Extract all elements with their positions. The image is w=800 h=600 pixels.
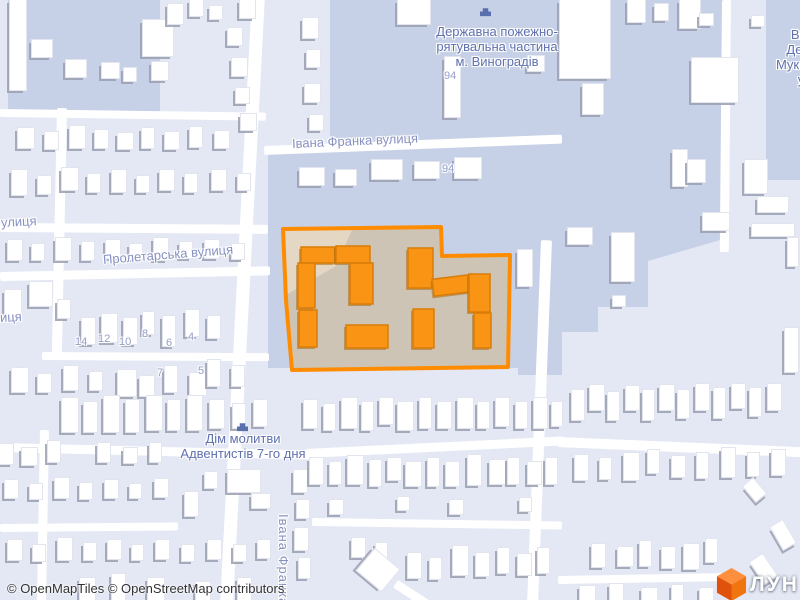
house-number: 5: [198, 365, 204, 377]
house-number: 94: [442, 163, 454, 175]
complex-building[interactable]: [350, 263, 373, 304]
lun-cube-icon: [716, 568, 747, 600]
complex-building[interactable]: [299, 310, 317, 347]
house-number: 10: [119, 336, 131, 348]
house-number: 7: [157, 367, 163, 379]
complex-building[interactable]: [408, 248, 433, 288]
complex-building[interactable]: [469, 274, 490, 312]
house-number: 94: [444, 70, 456, 82]
complex-building[interactable]: [432, 275, 471, 296]
complex-building[interactable]: [301, 247, 335, 263]
adventist-church-label: Дім молитвиАдвентистів 7-го дня: [180, 431, 305, 461]
street-label: улиця: [1, 213, 37, 230]
church-icon: [236, 419, 249, 430]
house-number: 4: [188, 331, 194, 343]
attribution-text[interactable]: © OpenMapTiles © OpenStreetMap contribut…: [7, 581, 284, 596]
complex-building[interactable]: [474, 313, 491, 348]
university-label: ВиноДержаМукачівсьуні: [776, 27, 800, 87]
street-label: иця: [0, 309, 22, 325]
house-number: 8: [142, 328, 148, 340]
fire-station-label: Державна пожежно-рятувальна частинам. Ви…: [436, 24, 557, 69]
complex-building[interactable]: [413, 309, 434, 348]
lun-logo[interactable]: ЛУН: [716, 568, 799, 600]
house-number: 6: [166, 337, 172, 349]
lun-logo-text: ЛУН: [750, 573, 799, 597]
highlighted-complex[interactable]: [0, 0, 800, 600]
house-number: 14: [75, 336, 87, 348]
map-canvas[interactable]: Івана Франка вулицяПролетарська вулицяул…: [0, 0, 800, 600]
fire-station-icon: [479, 4, 492, 15]
house-number: 12: [98, 333, 110, 345]
complex-building[interactable]: [346, 325, 388, 348]
attribution[interactable]: © OpenMapTiles © OpenStreetMap contribut…: [7, 581, 284, 596]
complex-building[interactable]: [336, 246, 370, 263]
complex-building[interactable]: [298, 263, 315, 308]
